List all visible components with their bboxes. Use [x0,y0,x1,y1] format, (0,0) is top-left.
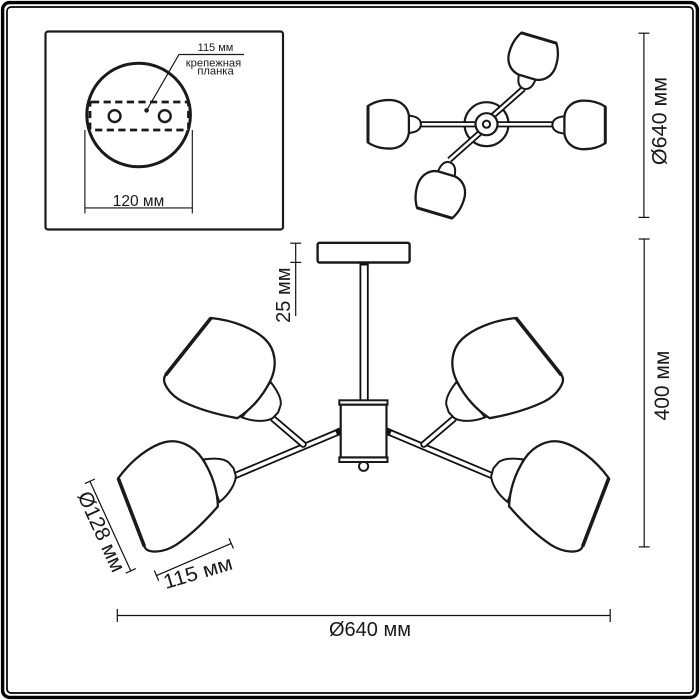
svg-text:планка: планка [197,66,234,78]
svg-text:120 мм: 120 мм [113,193,164,210]
svg-text:400 мм: 400 мм [651,351,674,421]
svg-text:115 мм: 115 мм [198,42,234,54]
svg-text:Ø640 мм: Ø640 мм [647,77,671,165]
svg-text:Ø640 мм: Ø640 мм [329,619,411,641]
svg-text:25 мм: 25 мм [273,268,295,323]
